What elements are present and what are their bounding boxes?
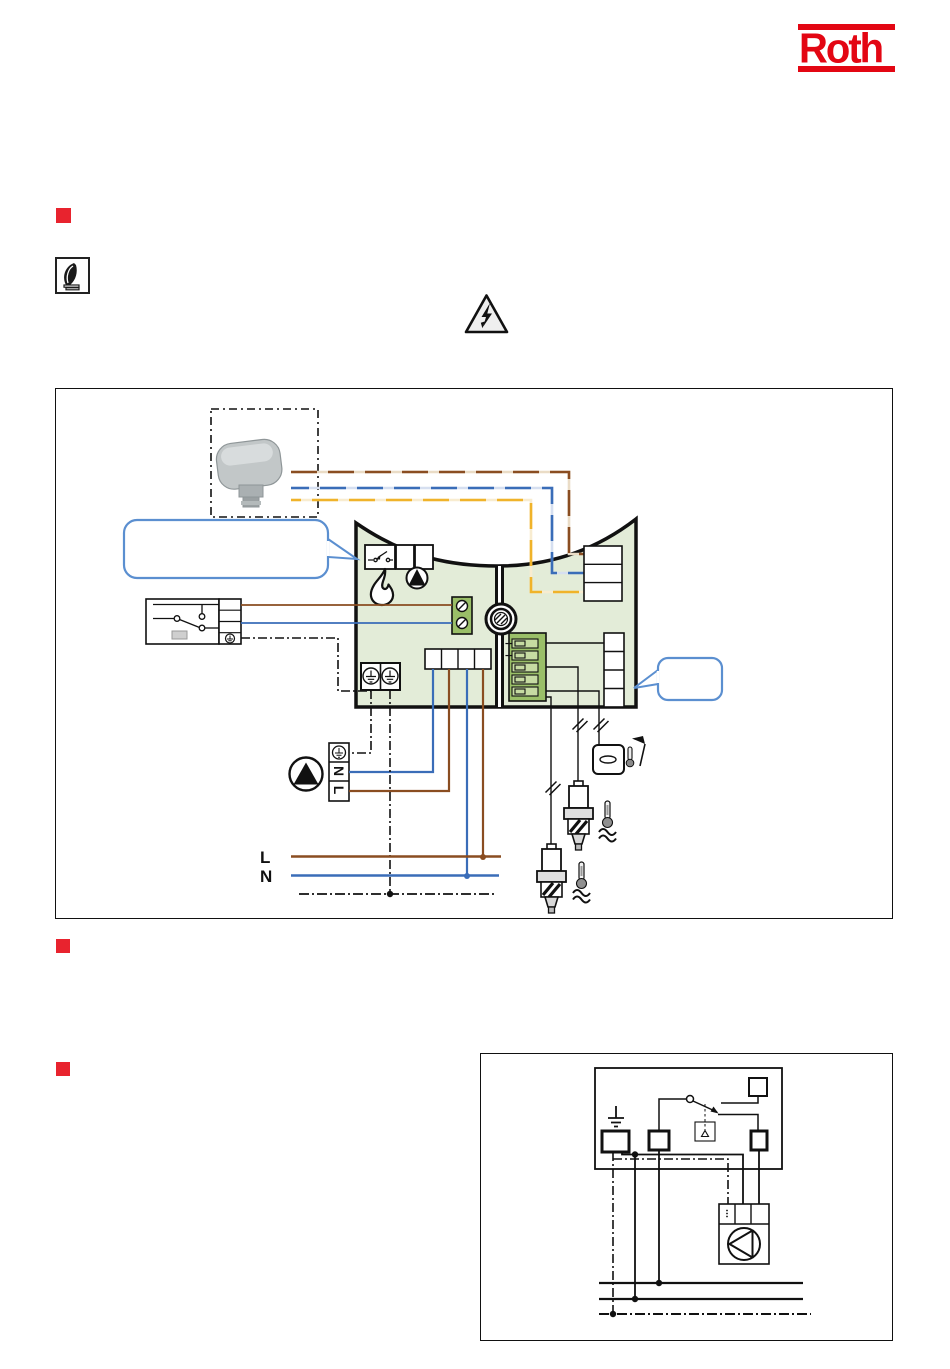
junction-dot-pe2 [610, 1311, 616, 1317]
immersion-sensor-2 [537, 844, 566, 913]
room-thermostat [146, 599, 241, 644]
relay-control-terminal [749, 1078, 767, 1096]
immersion-sensor-1 [564, 781, 593, 850]
burner-relay-terminals [365, 545, 433, 569]
junction-dot-l2 [656, 1280, 662, 1286]
wiring-diagram-main: N L L N [55, 388, 893, 919]
callout-left [124, 520, 357, 578]
relay-terminal-pe-n [602, 1131, 629, 1152]
thermostat-input-terminals [452, 597, 472, 634]
junction-dot-1 [632, 1151, 638, 1157]
pump-external [290, 758, 323, 791]
cable-gland-bar [495, 566, 504, 707]
pump-terminal-strip: N L [329, 743, 349, 801]
section-bullet-1 [56, 208, 71, 223]
section-bullet-2 [56, 939, 70, 953]
water-temp-icon-2 [573, 862, 590, 903]
mains-terminals [425, 649, 491, 669]
outdoor-sensor [593, 736, 645, 774]
relay-terminal-l-in [649, 1131, 669, 1150]
outdoor-thermometer-icon [626, 736, 645, 767]
callout-right [634, 658, 722, 700]
book-icon [57, 259, 88, 292]
bus-label-l: L [260, 848, 270, 867]
bus-label-n: N [260, 867, 272, 886]
junction-dot-n2 [632, 1296, 638, 1302]
relay-terminal-l-out [751, 1131, 767, 1150]
earth-terminals [361, 663, 400, 690]
output-terminals [604, 633, 624, 707]
warning-triangle-icon [464, 293, 509, 335]
manual-note-icon [55, 257, 90, 294]
junction-dot-pe [387, 891, 393, 897]
section-bullet-3 [56, 1062, 70, 1076]
water-temp-icon-1 [599, 801, 616, 842]
pump-terminal-label-l: L [331, 786, 347, 795]
wiring-diagram-relay [480, 1053, 893, 1341]
actuator-image [215, 438, 284, 507]
logo-text: Roth [799, 31, 907, 67]
pump-icon-internal [407, 568, 428, 589]
sensor-terminal-block [506, 633, 546, 701]
actuator-terminals [584, 546, 622, 601]
roth-logo: Roth [795, 24, 907, 72]
thermostat-earth-wire [241, 638, 371, 691]
pump-unit [719, 1204, 769, 1264]
strain-relief-knob [486, 604, 516, 634]
pump-terminal-label-n: N [331, 766, 347, 776]
